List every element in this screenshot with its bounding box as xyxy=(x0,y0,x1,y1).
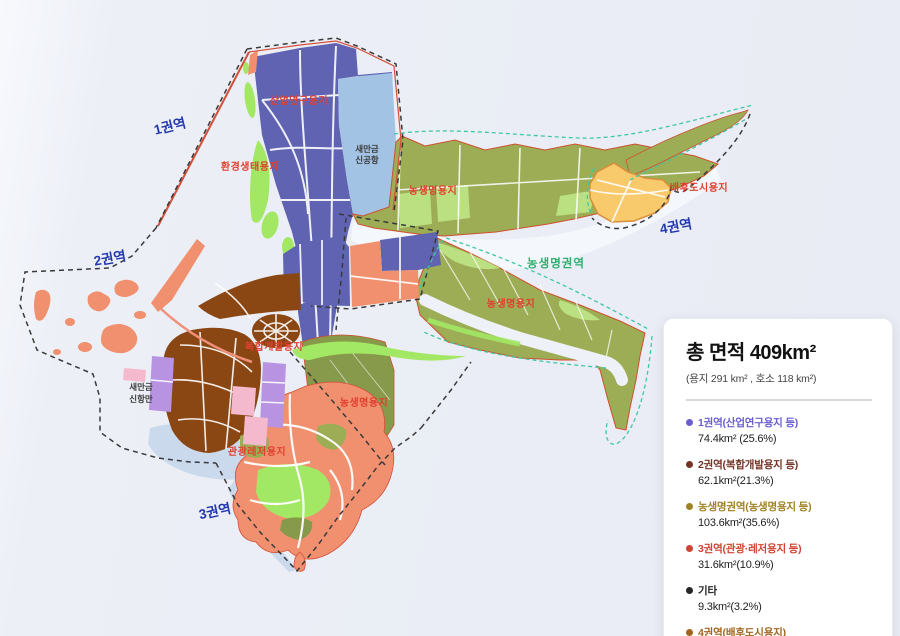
archipelago-islands xyxy=(34,280,146,355)
legend-subtitle: (용지 291 km² , 호소 118 km²) xyxy=(686,371,872,386)
legend-item-zone3: 3권역(관광·레저용지 등) 31.6km²(10.9%) xyxy=(686,541,872,571)
legend-item-zone1: 1권역(산업연구용지 등) 74.4km² (25.6%) xyxy=(686,415,872,445)
legend-item-label: 4권역(배후도시용지) xyxy=(698,625,786,636)
label-complex-dev-land: 복합개발용지 xyxy=(245,340,303,353)
zone4-bullet-icon xyxy=(686,629,693,636)
land-use-map-page: 1권역 2권역 3권역 4권역 산업연구용지 환경생태용지 농생명용지 배후도시… xyxy=(0,0,900,636)
legend-item-value: 74.4km² (25.6%) xyxy=(698,433,872,445)
legend-item-label: 3권역(관광·레저용지 등) xyxy=(698,541,801,556)
label-agri-land-arm: 농생명용지 xyxy=(487,297,536,310)
legend-item-value: 9.3km²(3.2%) xyxy=(698,601,872,613)
legend-item-etc: 기타 9.3km²(3.2%) xyxy=(686,583,872,613)
legend-card: 총 면적 409km² (용지 291 km² , 호소 118 km²) 1권… xyxy=(663,318,893,636)
legend-item-value: 62.1km²(21.3%) xyxy=(698,475,872,487)
zone1-bullet-icon xyxy=(686,419,693,426)
legend-item-value: 31.6km²(10.9%) xyxy=(698,559,872,571)
zone3-bullet-icon xyxy=(686,545,693,552)
label-airport-line1: 새만금 xyxy=(355,144,379,154)
legend-item-value: 103.6km²(35.6%) xyxy=(698,517,872,529)
label-zone2: 2권역 xyxy=(93,247,128,268)
label-agri-region: 농생명권역 xyxy=(527,256,585,270)
label-eco-land: 환경생태용지 xyxy=(221,160,279,173)
legend-item-label: 농생명권역(농생명용지 등) xyxy=(698,499,811,514)
agri-region-bullet-icon xyxy=(686,503,693,510)
legend-item-label: 1권역(산업연구용지 등) xyxy=(698,415,798,430)
label-agri-land-top: 농생명용지 xyxy=(409,184,458,197)
label-tourism-land: 관광레저용지 xyxy=(228,445,286,458)
etc-bullet-icon xyxy=(686,587,693,594)
label-seaport-line2: 신항만 xyxy=(129,394,153,404)
label-seaport-line1: 새만금 xyxy=(129,382,153,392)
label-industrial-land: 산업연구용지 xyxy=(270,94,328,107)
legend-item-zone4: 4권역(배후도시용지) 10.0km²(3.4%) xyxy=(686,625,872,636)
label-zone3: 3권역 xyxy=(197,500,232,522)
legend-item-label: 기타 xyxy=(698,583,717,598)
label-agri-land-bottom: 농생명용지 xyxy=(340,396,389,409)
label-airport-line2: 신공항 xyxy=(355,155,379,165)
legend-item-agri-region: 농생명권역(농생명용지 등) 103.6km²(35.6%) xyxy=(686,499,872,529)
label-zone1: 1권역 xyxy=(152,114,187,137)
legend-item-zone2: 2권역(복합개발용지 등) 62.1km²(21.3%) xyxy=(686,457,872,487)
legend-title: 총 면적 409km² xyxy=(686,336,872,365)
label-zone4: 4권역 xyxy=(659,215,694,236)
legend-item-label: 2권역(복합개발용지 등) xyxy=(698,457,798,472)
label-city-land: 배후도시용지 xyxy=(670,181,728,194)
zone2-bullet-icon xyxy=(686,461,693,468)
legend-divider xyxy=(686,399,872,401)
